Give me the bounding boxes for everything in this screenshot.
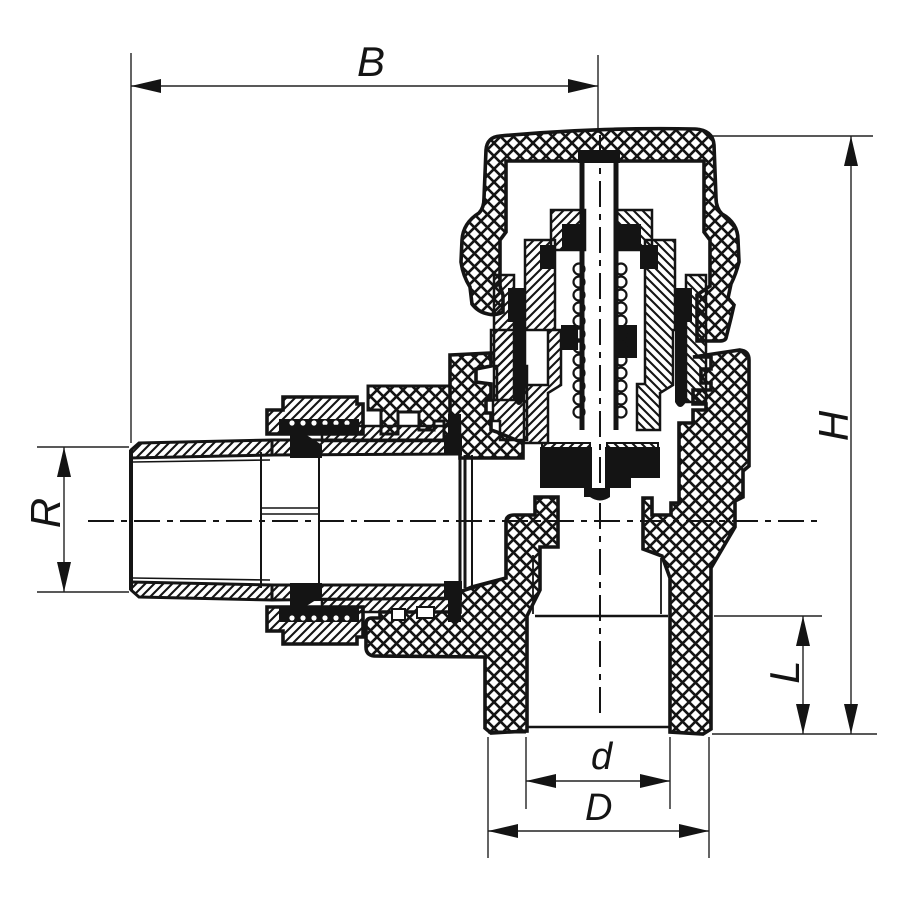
svg-text:d: d xyxy=(591,736,614,778)
svg-text:H: H xyxy=(810,410,857,441)
svg-text:B: B xyxy=(357,38,385,85)
svg-text:R: R xyxy=(22,498,69,528)
svg-text:D: D xyxy=(585,787,612,829)
svg-text:L: L xyxy=(761,660,808,683)
